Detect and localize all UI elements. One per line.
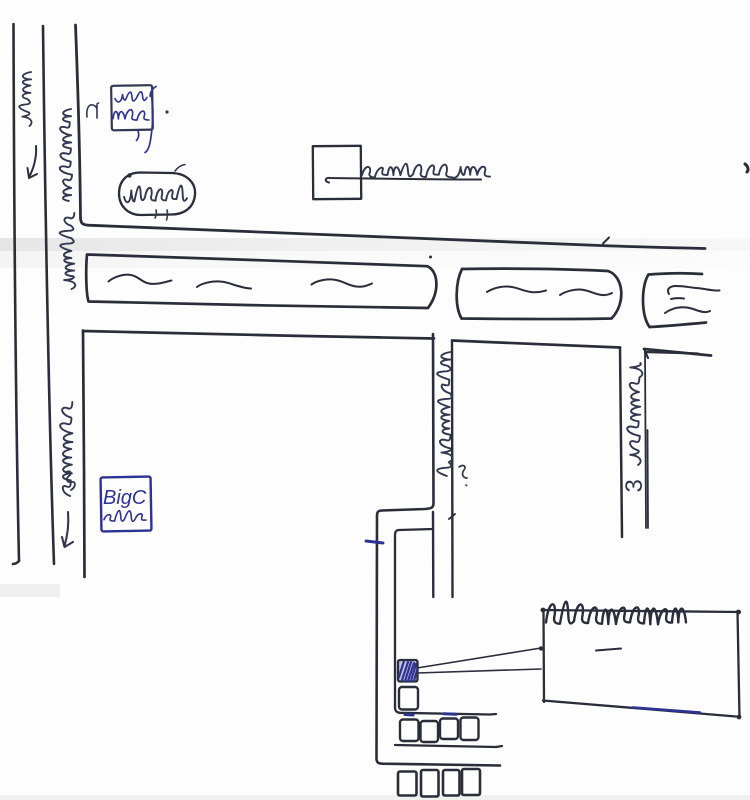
svg-text:BigC: BigC <box>103 487 147 509</box>
svg-text:3: 3 <box>621 479 648 492</box>
